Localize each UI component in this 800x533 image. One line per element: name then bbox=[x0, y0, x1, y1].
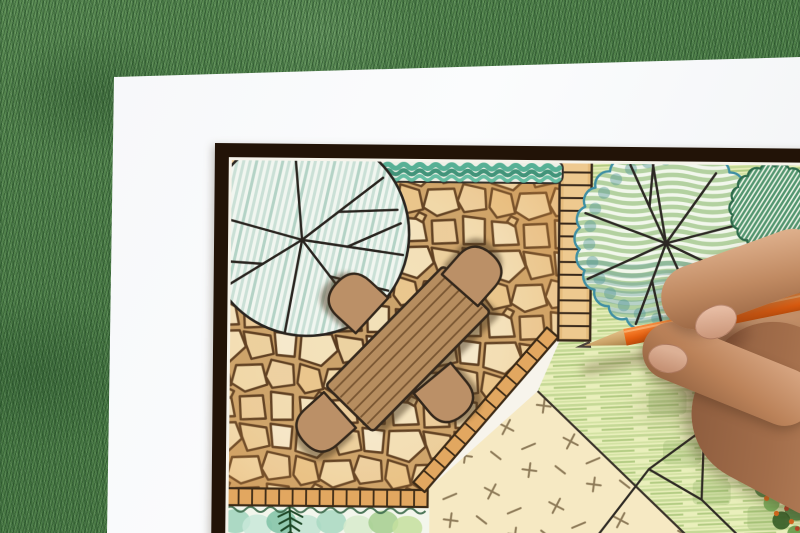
photo-scene bbox=[0, 0, 800, 533]
pencil-graphite-tip bbox=[574, 340, 591, 352]
planting-bed bbox=[220, 505, 429, 533]
